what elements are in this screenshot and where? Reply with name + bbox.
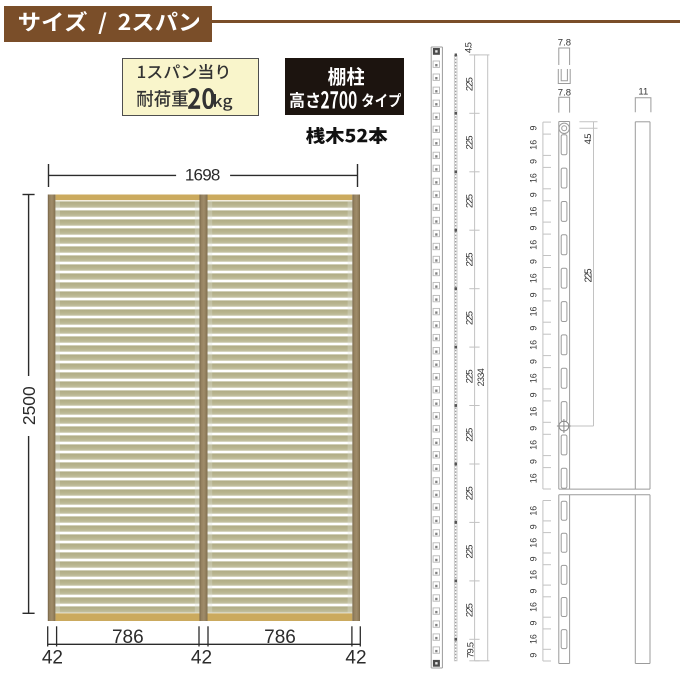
svg-text:16: 16	[528, 407, 538, 417]
svg-text:16: 16	[528, 538, 538, 548]
svg-text:9: 9	[528, 159, 538, 164]
svg-text:4.5: 4.5	[463, 42, 474, 53]
svg-text:9: 9	[528, 653, 538, 658]
svg-text:9: 9	[528, 588, 538, 593]
svg-text:7.8: 7.8	[558, 37, 571, 48]
svg-text:225: 225	[464, 311, 475, 325]
svg-text:225: 225	[464, 77, 475, 91]
svg-text:16: 16	[528, 506, 538, 516]
svg-text:225: 225	[464, 252, 475, 266]
svg-text:16: 16	[528, 273, 538, 283]
svg-text:9: 9	[528, 192, 538, 197]
svg-text:9: 9	[528, 292, 538, 297]
svg-text:42: 42	[345, 647, 366, 668]
svg-text:16: 16	[528, 140, 538, 150]
svg-text:9: 9	[528, 556, 538, 561]
svg-text:16: 16	[528, 340, 538, 350]
svg-text:225: 225	[464, 486, 475, 500]
svg-text:2334: 2334	[476, 368, 486, 386]
svg-text:225: 225	[464, 369, 475, 383]
svg-text:225: 225	[584, 268, 595, 283]
svg-text:225: 225	[464, 428, 475, 442]
svg-text:11: 11	[638, 87, 648, 98]
svg-text:16: 16	[528, 240, 538, 250]
svg-text:225: 225	[464, 603, 475, 617]
svg-text:9: 9	[528, 426, 538, 431]
svg-text:7.8: 7.8	[558, 87, 571, 98]
svg-text:16: 16	[528, 307, 538, 317]
svg-text:16: 16	[528, 373, 538, 383]
svg-text:225: 225	[464, 135, 475, 149]
svg-text:1698: 1698	[185, 165, 221, 184]
svg-text:4.5: 4.5	[583, 133, 594, 144]
svg-text:9: 9	[528, 392, 538, 397]
svg-text:9: 9	[528, 359, 538, 364]
svg-text:16: 16	[528, 173, 538, 183]
svg-text:79.5: 79.5	[466, 642, 477, 658]
svg-text:9: 9	[528, 326, 538, 331]
svg-text:9: 9	[528, 259, 538, 264]
svg-text:786: 786	[112, 627, 144, 648]
svg-text:9: 9	[528, 621, 538, 626]
svg-text:16: 16	[528, 570, 538, 580]
svg-text:2500: 2500	[19, 386, 39, 425]
svg-text:16: 16	[528, 602, 538, 612]
svg-text:9: 9	[528, 126, 538, 131]
svg-text:9: 9	[528, 459, 538, 464]
svg-text:225: 225	[464, 545, 475, 559]
svg-text:42: 42	[42, 647, 63, 668]
svg-text:16: 16	[528, 634, 538, 644]
svg-text:225: 225	[464, 194, 475, 208]
svg-text:16: 16	[528, 440, 538, 450]
svg-text:9: 9	[528, 226, 538, 231]
svg-text:786: 786	[264, 627, 296, 648]
svg-text:42: 42	[191, 647, 212, 668]
svg-text:16: 16	[528, 207, 538, 217]
svg-text:9: 9	[528, 524, 538, 529]
svg-text:16: 16	[528, 473, 538, 483]
